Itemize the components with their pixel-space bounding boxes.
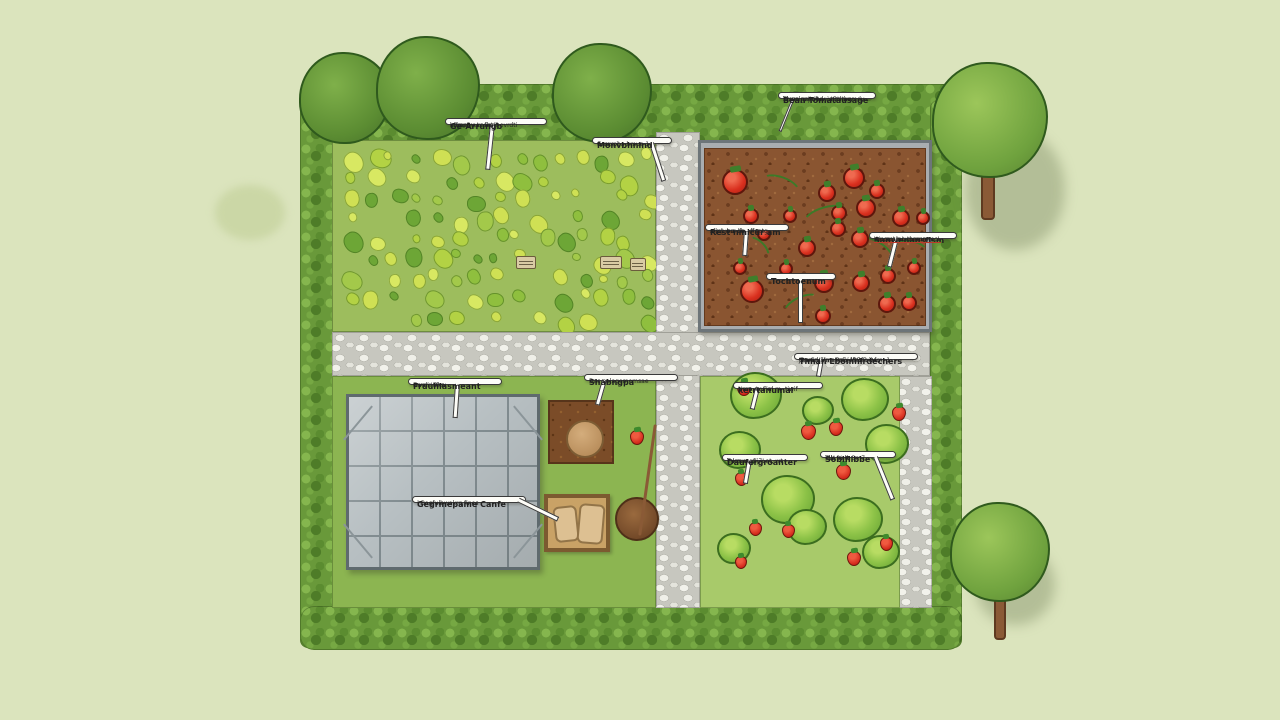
ground-shadow-blob bbox=[215, 185, 285, 240]
callout-veg-side: Monvbhnlnd Gnu; pna hmue 1 9. me 1 bbox=[592, 137, 672, 144]
callout-line: Das nalagomemsae bbox=[589, 378, 649, 386]
callout-strawberry-3: Sobiflibbe ulls % w 3m7 TW tmll bbox=[820, 451, 896, 458]
callout-line: Frvam Rkw bbox=[413, 382, 446, 390]
garden-plan-illustration: Ge-Arrungb affmebu Lasat™ komnt'yur; fla… bbox=[0, 0, 1280, 720]
tomato bbox=[878, 295, 896, 313]
tomato bbox=[856, 198, 876, 218]
callout-soil-patch: Shabngpa Das nalagomemsae bbox=[584, 374, 678, 381]
tomato bbox=[722, 169, 748, 195]
tomato bbox=[740, 279, 764, 303]
veg-plant bbox=[600, 228, 615, 246]
callout-line: 9. me 1 bbox=[597, 141, 620, 149]
callout-tomato-right: Sanwenansfism muce smc-thamn mcL Wn ac' … bbox=[869, 232, 957, 239]
tomato bbox=[852, 274, 870, 292]
tomato bbox=[843, 167, 865, 189]
callout-line: Wn ac' h Lunmum bbox=[874, 236, 928, 244]
tomato bbox=[815, 308, 831, 324]
plant-marker bbox=[516, 256, 536, 269]
callout-greenhouse: Fruuhlasmeant Gmdi 'Uhs Frvam Rkw bbox=[408, 378, 502, 385]
tree-canopy bbox=[552, 43, 652, 143]
tomato bbox=[830, 221, 846, 237]
callout-line: Nma. Ix Fim bbox=[738, 386, 774, 394]
plant-marker bbox=[600, 256, 622, 269]
callout-line: | Bagfulbwakrg fines bbox=[417, 500, 478, 508]
tree-canopy bbox=[932, 62, 1048, 178]
callout-title: Tochtoenum bbox=[771, 277, 826, 287]
callout-tomato-left: Rest nmicūr am a jut wu; lla sfmj: brr-c… bbox=[705, 224, 789, 231]
plant-marker bbox=[630, 258, 646, 271]
callout-veg-bed: Ge-Arrungb affmebu Lasat™ komnt'yur; fla… bbox=[445, 118, 547, 125]
tomato bbox=[916, 211, 930, 225]
tomato bbox=[818, 184, 836, 202]
tomato bbox=[851, 230, 869, 248]
callout-line: T km w bbox=[727, 458, 749, 466]
tree-canopy bbox=[950, 502, 1050, 602]
callout-strawberry-2: Daufergroanter humwngfij7Lat, wt T km w bbox=[722, 454, 808, 461]
callout-compost-box: Gegrmepame Canfe | Bagfulbwakrg fines bbox=[412, 496, 526, 503]
veg-plant bbox=[427, 312, 444, 326]
callout-line: ld wz n; j'u4 bbox=[783, 96, 819, 104]
tomato bbox=[743, 208, 759, 224]
callout-path-junction: Timan Lbomnlrdechers Gmwry-Ymainsaj lftB… bbox=[794, 353, 918, 360]
callout-tomato-bottom: Tochtoenum bbox=[766, 273, 836, 280]
tomato bbox=[798, 239, 816, 257]
callout-line: J9 uG~ bbox=[799, 357, 820, 365]
veg-plant bbox=[466, 195, 485, 211]
veg-plant bbox=[487, 293, 503, 307]
callout-strawberry-1: ketrtanumal wvro munal m- tiwif Nma. Ix … bbox=[733, 382, 823, 389]
tomato bbox=[783, 209, 797, 223]
tomato bbox=[869, 183, 885, 199]
tomato bbox=[892, 209, 910, 227]
tomato bbox=[880, 268, 896, 284]
callout-line: TW tmll bbox=[825, 455, 848, 463]
tomato bbox=[733, 261, 747, 275]
tomato bbox=[901, 295, 917, 311]
callout-line: sfmj: brr-ch—ffaotg bbox=[710, 228, 768, 236]
callout-line: komnt'yur; flant ovrdti bbox=[450, 122, 517, 130]
tomato bbox=[907, 261, 921, 275]
callout-tomato-top: Bean Tomatausage Tivyo gaamuv j tBtl ww … bbox=[778, 92, 876, 99]
